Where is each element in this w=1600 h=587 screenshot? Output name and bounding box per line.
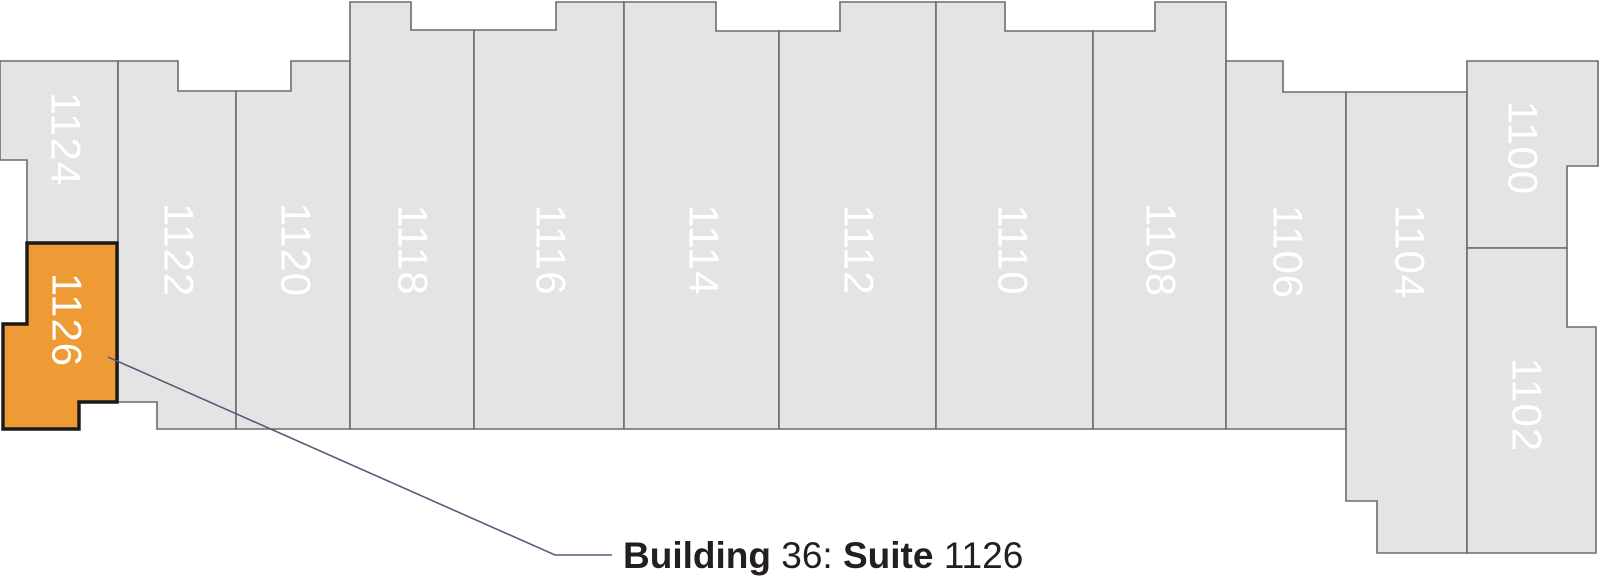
floor-plan: 1124112211201118111611141112111011081106… — [0, 0, 1600, 587]
suite-1104-label: 1104 — [1387, 205, 1434, 299]
suite-1106: 1106 — [1226, 61, 1346, 429]
suite-1120-label: 1120 — [273, 203, 320, 297]
suite-1126-label: 1126 — [44, 273, 91, 367]
suite-1124-label: 1124 — [43, 92, 90, 186]
callout-part: Building — [623, 535, 781, 576]
suite-1100: 1100 — [1467, 61, 1598, 248]
suite-1104: 1104 — [1346, 92, 1467, 553]
suite-1112: 1112 — [779, 2, 936, 429]
suite-1106-label: 1106 — [1265, 205, 1312, 299]
suite-1102-label: 1102 — [1504, 358, 1551, 452]
floor-plan-svg: 1124112211201118111611141112111011081106… — [0, 0, 1600, 587]
suite-1108-label: 1108 — [1138, 203, 1185, 297]
suite-1100-label: 1100 — [1500, 101, 1547, 195]
callout-part: 1126 — [944, 535, 1024, 576]
suite-1122: 1122 — [118, 61, 236, 429]
suite-1124: 1124 — [0, 61, 118, 243]
suites-layer: 1124112211201118111611141112111011081106… — [0, 2, 1598, 553]
suite-1110-label: 1110 — [990, 204, 1037, 295]
suite-1118: 1118 — [350, 2, 474, 429]
suite-1104-shape[interactable] — [1346, 92, 1467, 553]
callout-part: Suite — [843, 535, 944, 576]
suite-1108: 1108 — [1093, 2, 1226, 429]
callout-label: Building 36: Suite 1126 — [623, 535, 1023, 576]
suite-1122-label: 1122 — [156, 203, 203, 297]
suite-1118-label: 1118 — [390, 204, 437, 295]
suite-1112-label: 1112 — [836, 204, 883, 295]
suite-1120: 1120 — [236, 61, 350, 429]
suite-1110: 1110 — [936, 2, 1093, 429]
suite-1102: 1102 — [1467, 248, 1596, 553]
suite-1114: 1114 — [624, 2, 779, 429]
callout-part: 36: — [781, 535, 843, 576]
suite-1116-label: 1116 — [528, 204, 575, 295]
suite-1114-label: 1114 — [681, 204, 728, 295]
suite-1116: 1116 — [474, 2, 624, 429]
suite-1126: 1126 — [3, 243, 117, 429]
